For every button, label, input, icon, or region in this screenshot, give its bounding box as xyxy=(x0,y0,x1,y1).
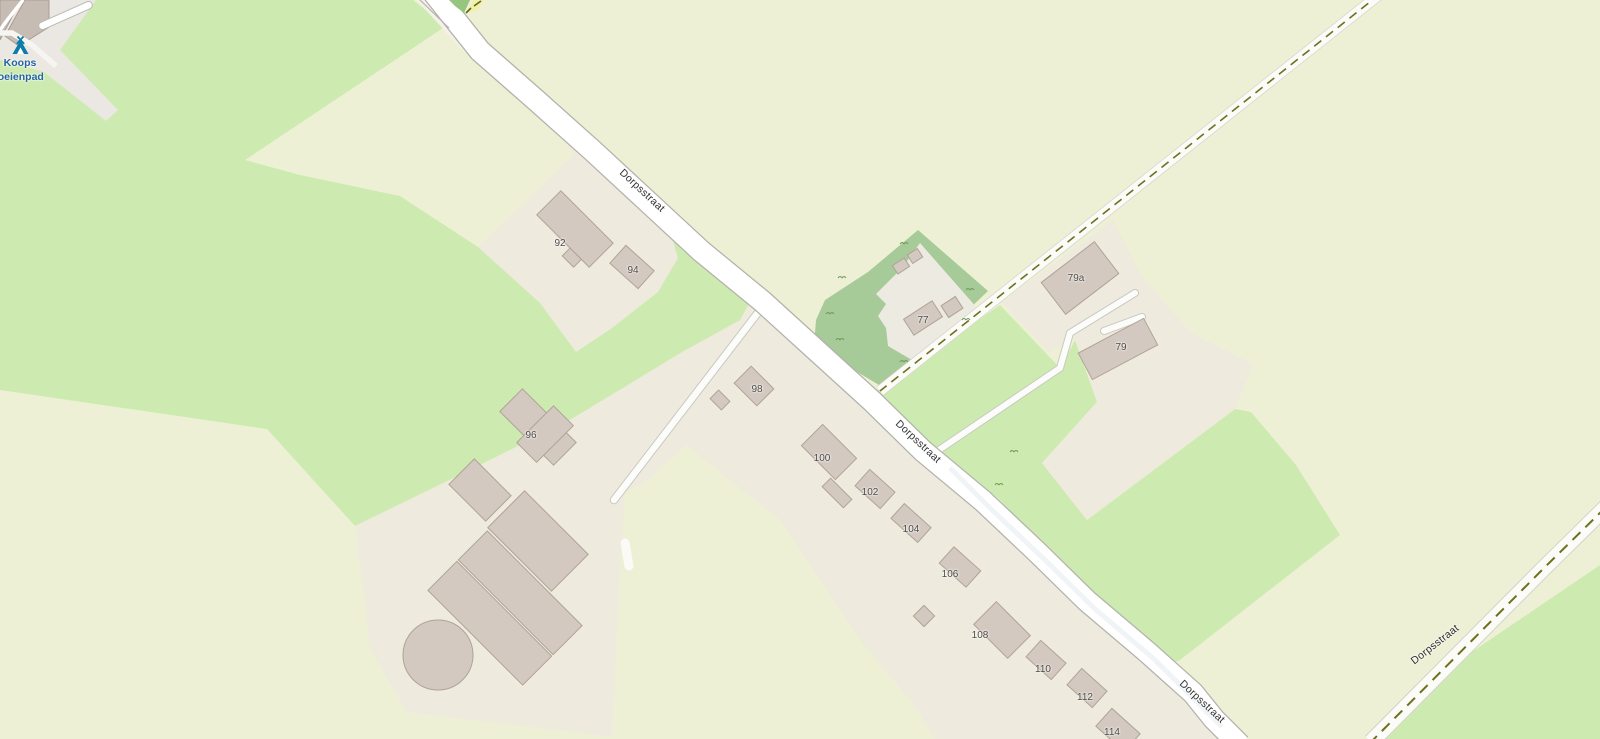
svg-text:108: 108 xyxy=(972,630,989,641)
svg-text:79: 79 xyxy=(1115,342,1127,353)
svg-text:106: 106 xyxy=(942,569,959,580)
svg-text:77: 77 xyxy=(917,315,929,326)
svg-text:Koeienpad: Koeienpad xyxy=(0,71,44,83)
svg-text:102: 102 xyxy=(862,487,879,498)
svg-text:110: 110 xyxy=(1035,664,1051,675)
svg-text:79a: 79a xyxy=(1068,273,1085,284)
svg-text:114: 114 xyxy=(1104,727,1120,738)
svg-text:98: 98 xyxy=(751,384,763,395)
svg-text:94: 94 xyxy=(627,265,639,276)
svg-text:104: 104 xyxy=(903,524,920,535)
svg-text:92: 92 xyxy=(554,238,566,249)
svg-text:Koops: Koops xyxy=(4,57,37,69)
svg-text:96: 96 xyxy=(525,430,537,441)
svg-text:112: 112 xyxy=(1077,692,1093,703)
svg-text:100: 100 xyxy=(814,453,831,464)
